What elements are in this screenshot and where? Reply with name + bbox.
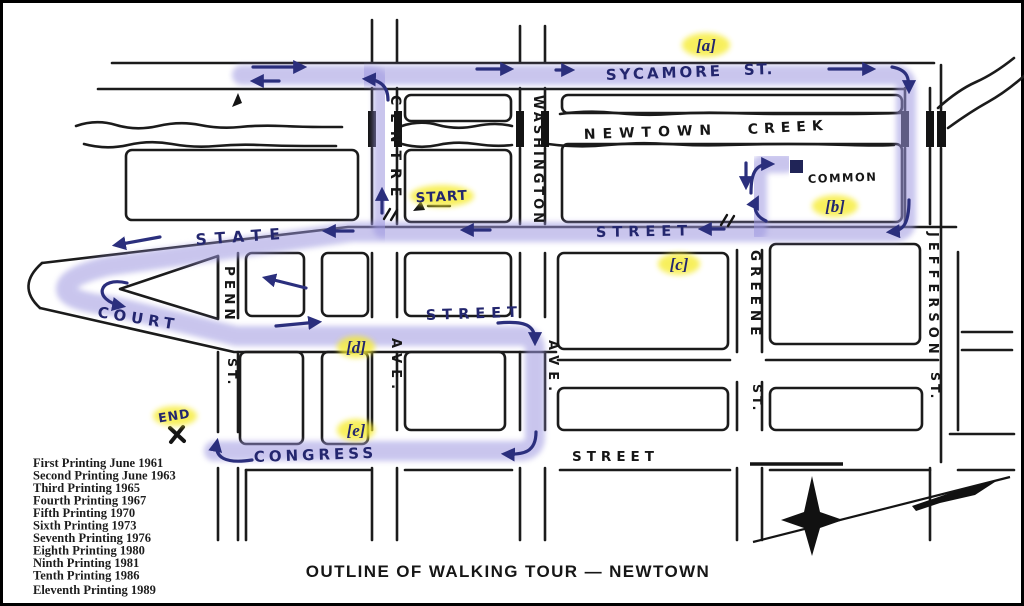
tag-b: [b] <box>825 197 845 216</box>
label-sycamore-st: ST. <box>744 60 775 79</box>
arrow-court-east <box>276 322 318 326</box>
map-title: OUTLINE OF WALKING TOUR — NEWTOWN <box>306 562 710 581</box>
compass-north-arrow <box>750 464 1010 556</box>
common-square <box>790 160 803 173</box>
sycamore-tick-mark <box>232 93 242 107</box>
tag-d: [d] <box>346 338 366 357</box>
compass-feather <box>912 480 998 511</box>
label-congress-street: STREET <box>572 449 659 465</box>
label-creek: CREEK <box>747 118 829 138</box>
tag-e: [e] <box>347 421 366 440</box>
compass-shaft <box>753 477 1010 542</box>
label-washington: WASHINGTON <box>530 95 545 226</box>
arrow-state-slant <box>116 237 160 245</box>
label-congress: CONGRESS <box>254 444 378 466</box>
label-penn-st: ST. <box>225 358 240 387</box>
printing-line: Eleventh Printing 1989 <box>33 583 156 597</box>
arrow-court-slant <box>266 278 306 288</box>
label-centre-ave: AVE. <box>388 338 403 395</box>
walking-tour-map: [a] [b] [c] [d] [e] START END SYCAMORE S… <box>0 0 1024 606</box>
label-jefferson-st: ST. <box>928 372 943 401</box>
label-jefferson: JEFFERSON <box>925 231 940 359</box>
label-greene-st: ST. <box>750 384 765 413</box>
label-penn: PENN <box>221 266 237 324</box>
printing-history: First Printing June 1961 Second Printing… <box>33 456 176 597</box>
street-grid <box>28 20 1014 540</box>
label-newtown: NEWTOWN <box>584 122 719 143</box>
label-state-street: STREET <box>596 223 693 241</box>
tag-c: [c] <box>670 255 689 274</box>
label-court-street: STREET <box>426 305 524 324</box>
label-washington-ave: AVE. <box>545 340 560 397</box>
printing-line: Tenth Printing 1986 <box>33 569 140 583</box>
end-x-mark <box>170 427 184 442</box>
start-label: START <box>415 188 468 207</box>
label-common: COMMON <box>808 170 878 186</box>
label-centre: CENTRE <box>387 95 403 204</box>
compass-star <box>781 476 843 556</box>
tag-a: [a] <box>696 36 716 55</box>
label-greene: GREENE <box>747 250 763 340</box>
city-blocks <box>126 95 922 444</box>
